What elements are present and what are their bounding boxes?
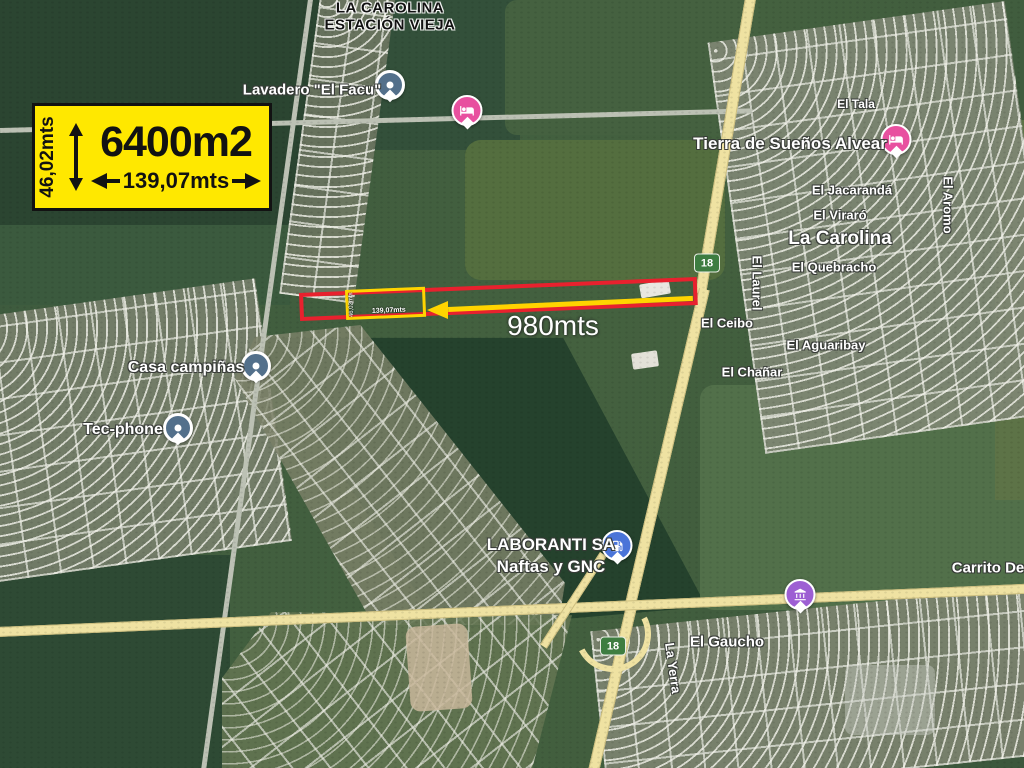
field-patch — [0, 555, 230, 768]
vertical-double-arrow-icon — [69, 123, 83, 191]
building-complex — [405, 623, 473, 712]
route-18-shield: 18 — [600, 637, 626, 656]
town-grid-southeast — [590, 585, 1024, 768]
building — [845, 665, 935, 735]
station-label-line2: ESTACIÓN VIEJA — [325, 17, 456, 34]
lodging-pin[interactable] — [452, 95, 483, 126]
parcel-highlight-box: 46,02mts 139,07mts — [345, 287, 426, 320]
area-value: 6400m2 — [100, 120, 252, 165]
area-dimension: 6400m2 139,07mts — [91, 111, 261, 203]
width-dimension-label: 139,07mts — [120, 168, 232, 194]
street-label-el-chanar: El Chañar — [722, 365, 783, 380]
street-label-el-aromo: El Aromo — [941, 176, 956, 233]
satellite-map: 46,02mts 139,07mts 980mts 18 18 LA CAROL… — [0, 0, 1024, 768]
poi-label-tec-phone: Tec-phone — [83, 421, 163, 439]
cemetery-grid — [222, 612, 572, 768]
street-label-el-viraro: El Viraró — [813, 208, 866, 223]
business-pin-tec-phone[interactable] — [163, 413, 193, 443]
landmark-pin[interactable] — [785, 579, 816, 610]
depth-dimension-label: 46,02mts — [37, 116, 59, 197]
route-18-shield: 18 — [694, 254, 720, 273]
bed-icon — [889, 132, 904, 147]
field-patch — [465, 140, 725, 280]
poi-label-lavadero: Lavadero "El Facu" — [243, 82, 381, 99]
landmark-icon — [793, 588, 807, 602]
street-label-el-aguaribay: El Aguaribay — [787, 338, 866, 353]
station-label: LA CAROLINA ESTACIÓN VIEJA — [325, 1, 456, 34]
distance-label: 980mts — [507, 310, 599, 342]
station-label-line1: LA CAROLINA — [325, 1, 456, 18]
poi-label-tierra-suenos: Tierra de Sueños Alvear — [693, 134, 887, 154]
area-info-box: 46,02mts 6400m2 139,07mts — [32, 103, 272, 211]
poi-label-laboranti: LABORANTI SA Naftas y GNC — [487, 534, 615, 578]
street-label-el-jacaranda: El Jacarandá — [812, 183, 892, 198]
poi-label-laboranti-line2: Naftas y GNC — [487, 556, 615, 578]
street-label-el-laurel: El Laurel — [750, 256, 765, 311]
horizontal-double-arrow-icon: 139,07mts — [91, 168, 261, 194]
street-label-el-gaucho: El Gaucho — [690, 634, 764, 651]
poi-label-casa-campinas: Casa campiñas — [128, 359, 245, 377]
business-pin-casa-campinas[interactable] — [241, 351, 271, 381]
parcel-depth-label: 46,02mts — [348, 292, 355, 317]
poi-label-carrito: Carrito De — [952, 560, 1024, 577]
street-label-el-tala: El Tala — [837, 97, 875, 111]
distance-arrow-head — [427, 301, 448, 319]
depth-dimension: 46,02mts — [39, 111, 91, 203]
building — [631, 350, 659, 369]
street-label-el-ceibo: El Ceibo — [701, 316, 753, 331]
town-label-la-carolina: La Carolina — [788, 228, 891, 250]
bed-icon — [460, 103, 475, 118]
poi-label-laboranti-line1: LABORANTI SA — [487, 534, 615, 556]
parcel-width-label: 139,07mts — [372, 307, 406, 315]
street-label-el-quebracho: El Quebracho — [792, 260, 877, 275]
